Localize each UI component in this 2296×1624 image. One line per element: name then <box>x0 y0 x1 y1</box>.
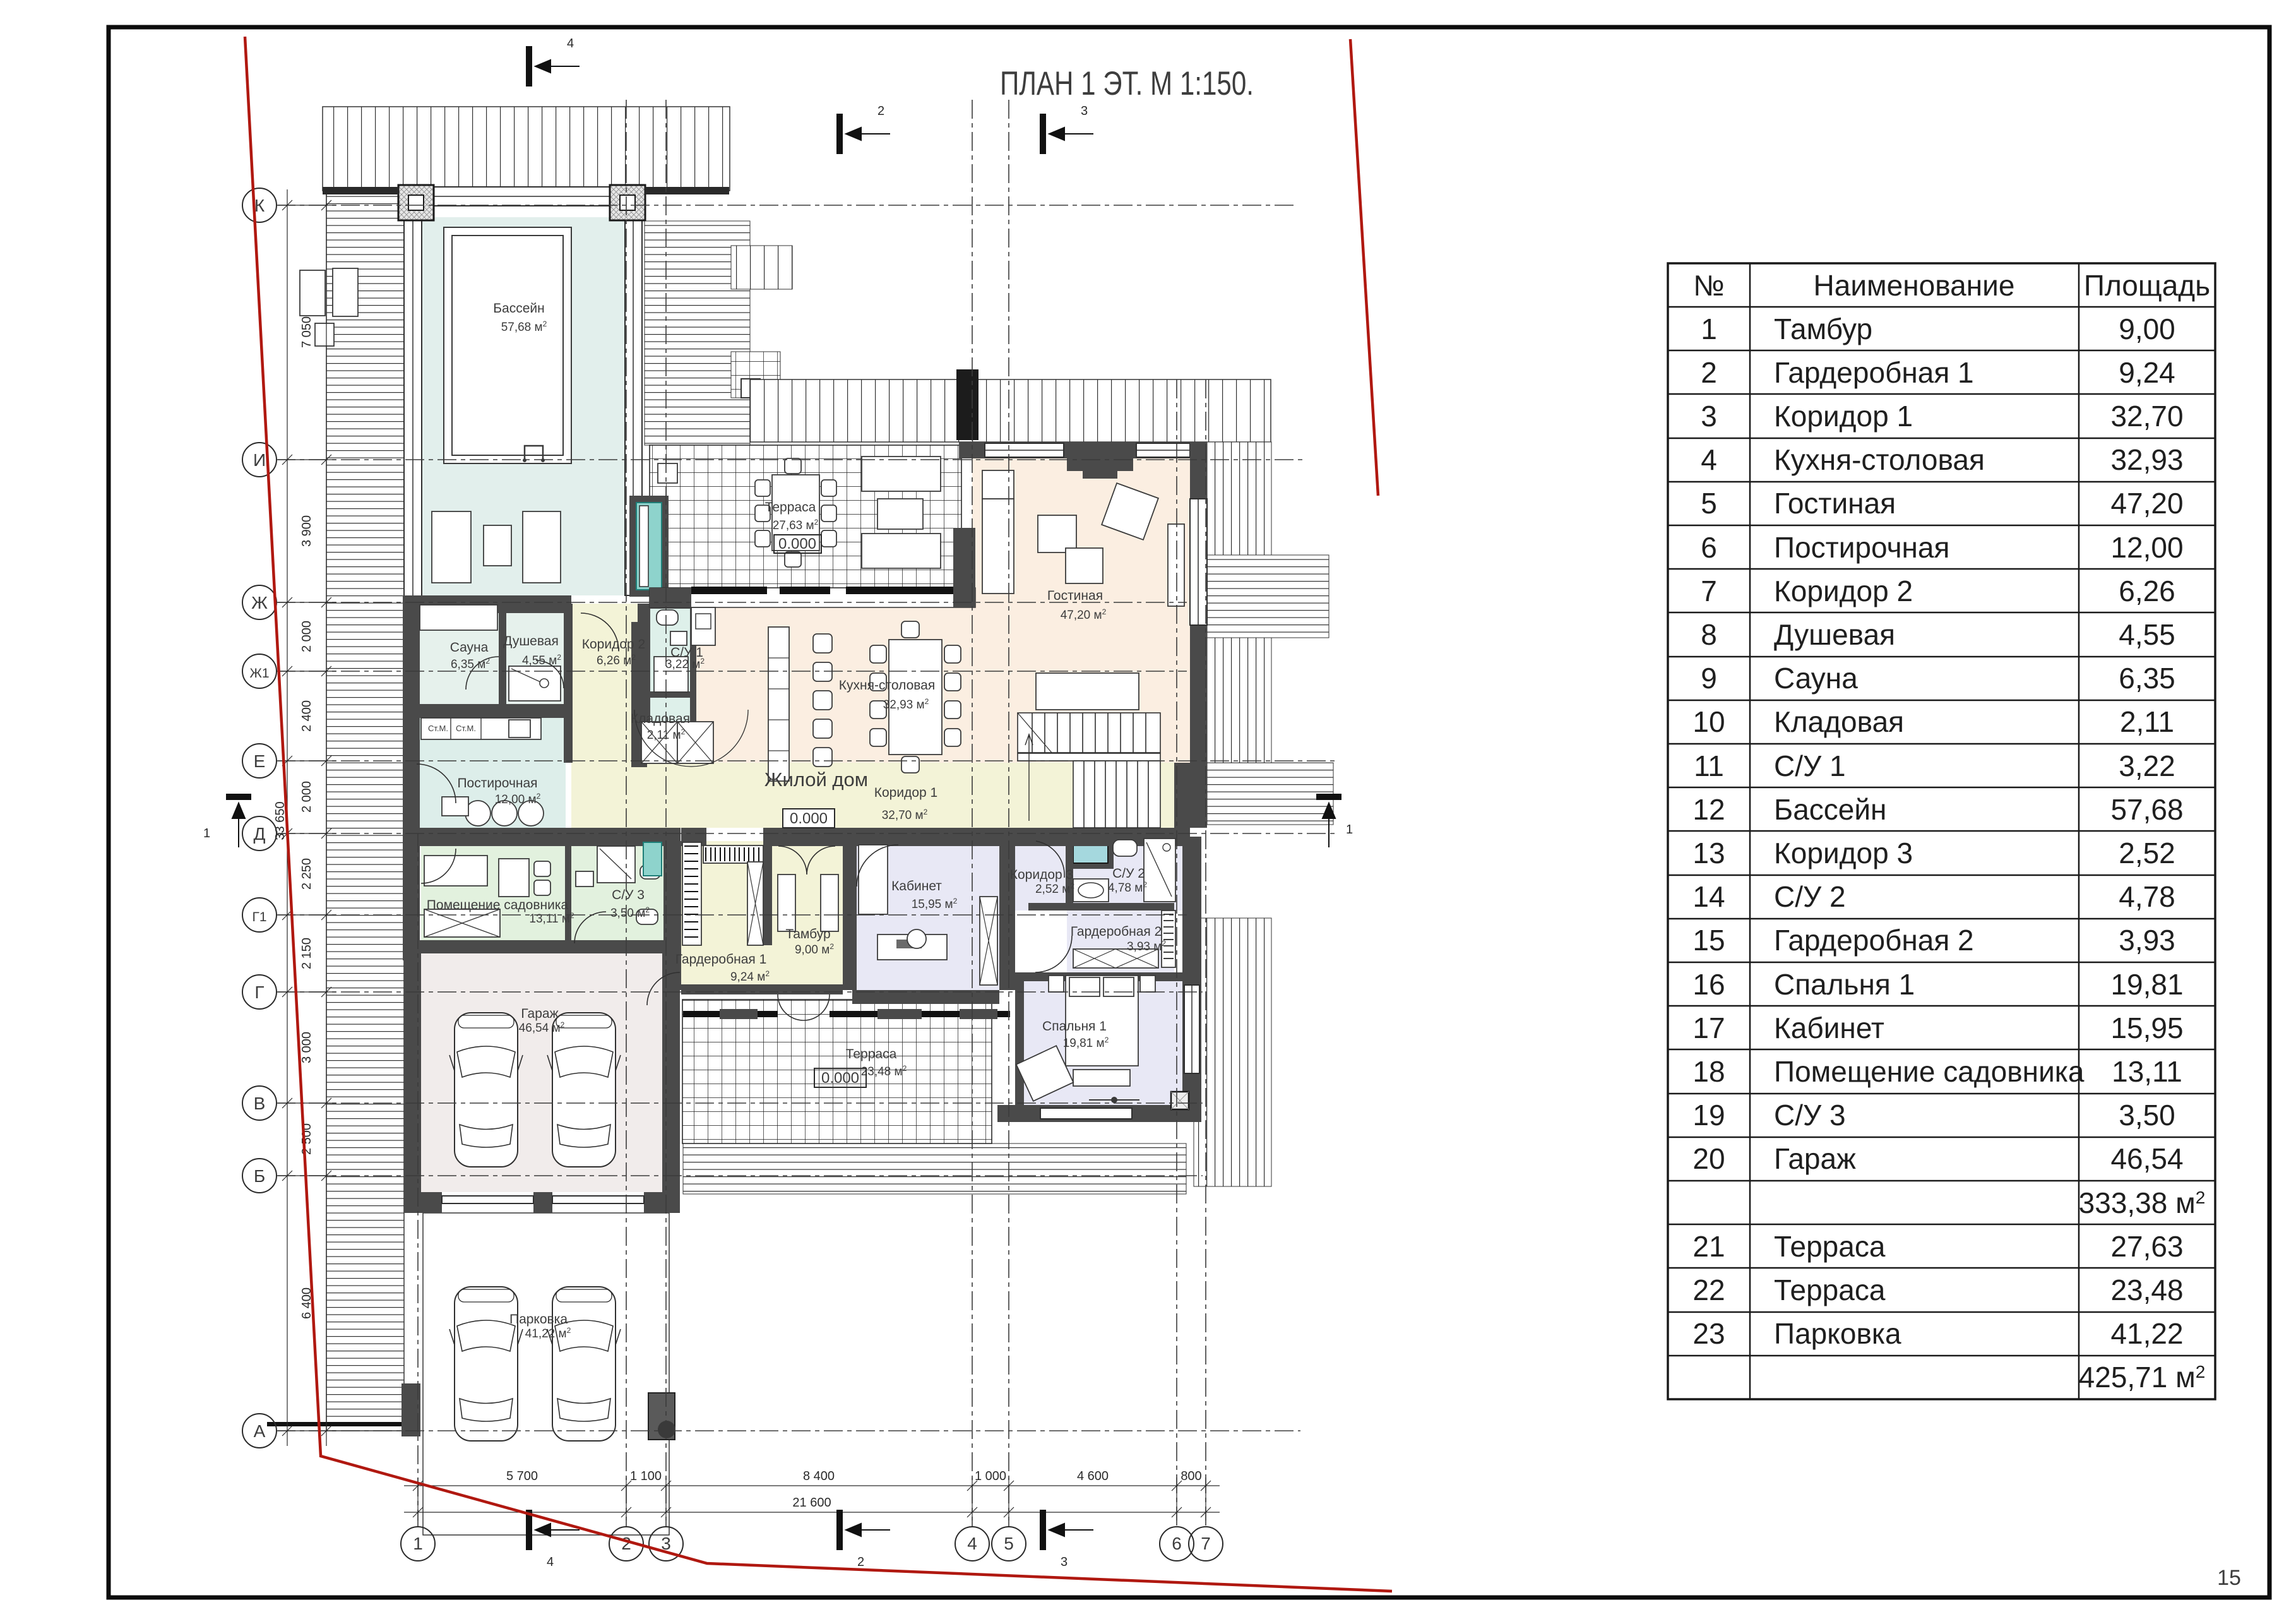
svg-text:19,81 м2: 19,81 м2 <box>1063 1036 1109 1050</box>
svg-text:15: 15 <box>2217 1566 2241 1590</box>
svg-text:Наименование: Наименование <box>1814 269 2015 302</box>
svg-text:Коридор 3: Коридор 3 <box>1774 837 1913 869</box>
svg-text:5: 5 <box>1004 1534 1014 1553</box>
svg-text:Ж1: Ж1 <box>249 666 269 681</box>
svg-text:С/У 3: С/У 3 <box>1774 1099 1846 1131</box>
svg-text:Коридор 2: Коридор 2 <box>1774 575 1913 607</box>
svg-text:Коридор 1: Коридор 1 <box>874 785 937 800</box>
svg-text:12: 12 <box>1692 793 1725 826</box>
svg-text:6,26: 6,26 <box>2119 575 2175 607</box>
svg-text:9,24 м2: 9,24 м2 <box>730 969 770 984</box>
svg-text:1: 1 <box>1701 313 1717 345</box>
svg-text:46,54: 46,54 <box>2110 1142 2183 1175</box>
svg-text:13,11 м2: 13,11 м2 <box>529 911 574 926</box>
svg-text:Д: Д <box>254 824 266 844</box>
svg-text:С/У 3: С/У 3 <box>612 888 645 902</box>
svg-text:15,95 м2: 15,95 м2 <box>912 897 958 911</box>
svg-text:9,00: 9,00 <box>2119 313 2175 345</box>
svg-text:Помещение садовника: Помещение садовника <box>427 898 569 912</box>
svg-text:21 600: 21 600 <box>792 1496 831 1510</box>
svg-text:Е: Е <box>254 751 266 771</box>
svg-text:18: 18 <box>1692 1055 1725 1088</box>
svg-text:Тамбур: Тамбур <box>785 927 830 941</box>
svg-text:Помещение садовника: Помещение садовника <box>1774 1055 2085 1088</box>
svg-text:Терраса: Терраса <box>1774 1274 1886 1306</box>
svg-text:С/У 1: С/У 1 <box>1774 749 1846 782</box>
svg-text:3,50: 3,50 <box>2119 1099 2175 1131</box>
svg-text:6,35 м2: 6,35 м2 <box>451 657 490 671</box>
svg-text:Ст.М.: Ст.М. <box>456 724 476 733</box>
svg-text:15,95: 15,95 <box>2110 1012 2183 1044</box>
svg-text:2 400: 2 400 <box>300 700 314 732</box>
svg-text:Спальня 1: Спальня 1 <box>1042 1019 1107 1034</box>
svg-text:800: 800 <box>1181 1469 1201 1483</box>
svg-text:2 150: 2 150 <box>300 938 314 969</box>
svg-text:4: 4 <box>967 1534 977 1553</box>
svg-text:425,71 м2: 425,71 м2 <box>2079 1361 2206 1394</box>
svg-text:Кухня-столовая: Кухня-столовая <box>839 678 935 693</box>
svg-text:5 700: 5 700 <box>506 1469 538 1483</box>
svg-text:2: 2 <box>857 1555 864 1569</box>
svg-text:4: 4 <box>547 1555 554 1569</box>
svg-text:2: 2 <box>1701 356 1717 389</box>
svg-text:4 600: 4 600 <box>1077 1469 1109 1483</box>
svg-text:32,93 м2: 32,93 м2 <box>883 697 929 712</box>
svg-text:Терраса: Терраса <box>765 500 816 515</box>
svg-text:Коридор 1: Коридор 1 <box>1774 400 1913 433</box>
svg-text:10: 10 <box>1692 705 1725 738</box>
svg-text:Гардеробная 2: Гардеробная 2 <box>1071 924 1162 939</box>
svg-text:Постирочная: Постирочная <box>457 776 537 791</box>
svg-text:7 050: 7 050 <box>300 316 314 348</box>
svg-text:Кладовая: Кладовая <box>1774 705 1904 738</box>
svg-text:Коридор 3: Коридор 3 <box>1010 868 1073 882</box>
svg-text:57,68 м2: 57,68 м2 <box>501 319 547 334</box>
svg-text:3,93 м2: 3,93 м2 <box>1127 939 1166 953</box>
svg-text:Спальня 1: Спальня 1 <box>1774 968 1915 1001</box>
svg-text:Кладовая: Кладовая <box>631 712 690 726</box>
svg-text:Ж: Ж <box>251 593 268 612</box>
svg-text:14: 14 <box>1692 880 1725 913</box>
svg-text:9,24: 9,24 <box>2119 356 2175 389</box>
svg-text:Жилой дом: Жилой дом <box>764 768 868 791</box>
svg-text:3 900: 3 900 <box>300 515 314 547</box>
svg-text:3,22 м2: 3,22 м2 <box>665 657 705 671</box>
svg-text:1: 1 <box>203 827 210 840</box>
svg-text:2 250: 2 250 <box>300 858 314 890</box>
svg-text:Душевая: Душевая <box>1774 618 1895 651</box>
svg-text:15: 15 <box>1692 924 1725 957</box>
svg-text:2,11: 2,11 <box>2120 705 2174 738</box>
svg-text:Коридор 2: Коридор 2 <box>582 637 645 652</box>
svg-text:19,81: 19,81 <box>2110 968 2183 1001</box>
svg-text:В: В <box>254 1094 266 1113</box>
svg-text:6: 6 <box>1701 531 1717 564</box>
svg-text:1: 1 <box>413 1534 423 1553</box>
svg-text:22: 22 <box>1692 1274 1725 1306</box>
svg-text:С/У 2: С/У 2 <box>1112 866 1145 881</box>
svg-text:17: 17 <box>1692 1012 1725 1044</box>
svg-text:11: 11 <box>1694 749 1724 782</box>
svg-text:Душевая: Душевая <box>503 634 559 648</box>
svg-text:2: 2 <box>877 104 884 118</box>
svg-text:Гостиная: Гостиная <box>1774 487 1896 520</box>
svg-text:Гардеробная 2: Гардеробная 2 <box>1774 924 1974 957</box>
svg-text:Ст.М.: Ст.М. <box>428 724 448 733</box>
svg-text:2,52: 2,52 <box>2119 837 2175 869</box>
svg-text:333,38 м2: 333,38 м2 <box>2079 1186 2206 1219</box>
svg-text:9: 9 <box>1701 662 1717 695</box>
svg-text:Кухня-столовая: Кухня-столовая <box>1774 443 1985 476</box>
svg-text:2,52 м2: 2,52 м2 <box>1035 881 1074 896</box>
svg-text:21: 21 <box>1692 1230 1725 1263</box>
svg-text:23,48 м2: 23,48 м2 <box>861 1064 907 1078</box>
svg-text:И: И <box>253 450 266 470</box>
svg-text:41,22 м2: 41,22 м2 <box>525 1326 571 1340</box>
svg-text:2: 2 <box>621 1534 631 1553</box>
svg-text:32,70: 32,70 <box>2110 400 2183 433</box>
svg-text:1 000: 1 000 <box>975 1469 1006 1483</box>
svg-text:3,50 м2: 3,50 м2 <box>610 905 650 920</box>
svg-text:Гараж: Гараж <box>1774 1142 1856 1175</box>
svg-text:27,63 м2: 27,63 м2 <box>773 518 819 532</box>
svg-text:32,93: 32,93 <box>2110 443 2183 476</box>
svg-text:Площадь: Площадь <box>2084 269 2210 302</box>
svg-text:С/У 2: С/У 2 <box>1774 880 1846 913</box>
svg-text:9,00 м2: 9,00 м2 <box>795 942 834 957</box>
svg-text:Терраса: Терраса <box>846 1047 897 1061</box>
svg-text:Кабинет: Кабинет <box>1774 1012 1884 1044</box>
svg-text:8 400: 8 400 <box>803 1469 835 1483</box>
svg-text:6,35: 6,35 <box>2119 662 2175 695</box>
svg-text:Парковка: Парковка <box>509 1312 568 1327</box>
svg-text:7: 7 <box>1201 1534 1211 1553</box>
svg-text:19: 19 <box>1692 1099 1725 1131</box>
svg-text:3: 3 <box>1061 1555 1068 1569</box>
svg-text:Гардеробная 1: Гардеробная 1 <box>675 952 767 967</box>
svg-text:4,78 м2: 4,78 м2 <box>1108 880 1147 895</box>
svg-text:Сауна: Сауна <box>450 640 489 655</box>
svg-text:А: А <box>254 1421 266 1441</box>
svg-text:2 000: 2 000 <box>300 781 314 813</box>
svg-text:5: 5 <box>1701 487 1717 520</box>
svg-text:12,00 м2: 12,00 м2 <box>495 792 541 806</box>
svg-text:57,68: 57,68 <box>2110 793 2183 826</box>
svg-text:3,22: 3,22 <box>2119 749 2175 782</box>
svg-text:23,48: 23,48 <box>2110 1274 2183 1306</box>
svg-text:32,70 м2: 32,70 м2 <box>882 808 928 822</box>
svg-text:0.000: 0.000 <box>790 810 828 827</box>
svg-text:13: 13 <box>1692 837 1725 869</box>
svg-text:Гостиная: Гостиная <box>1047 588 1103 603</box>
svg-text:4,55 м2: 4,55 м2 <box>522 653 561 667</box>
svg-text:0.000: 0.000 <box>778 535 816 552</box>
svg-text:1: 1 <box>1346 823 1353 837</box>
svg-text:Бассейн: Бассейн <box>1774 793 1886 826</box>
svg-text:3: 3 <box>1081 104 1088 118</box>
svg-text:27,63: 27,63 <box>2110 1230 2183 1263</box>
svg-text:Гараж: Гараж <box>521 1006 558 1021</box>
svg-text:2,11 м2: 2,11 м2 <box>647 727 686 742</box>
svg-text:3,93: 3,93 <box>2119 924 2175 957</box>
svg-text:23: 23 <box>1692 1317 1725 1350</box>
svg-text:3 000: 3 000 <box>300 1032 314 1063</box>
svg-text:13,11: 13,11 <box>2112 1055 2182 1088</box>
svg-text:Г1: Г1 <box>252 910 266 924</box>
svg-text:Б: Б <box>254 1166 265 1186</box>
svg-text:Гардеробная 1: Гардеробная 1 <box>1774 356 1974 389</box>
svg-text:8: 8 <box>1701 618 1717 651</box>
svg-text:4: 4 <box>1701 443 1717 476</box>
svg-text:46,54 м2: 46,54 м2 <box>519 1020 565 1035</box>
svg-text:4: 4 <box>567 37 574 51</box>
svg-text:№: № <box>1693 269 1724 302</box>
svg-text:Терраса: Терраса <box>1774 1230 1886 1263</box>
svg-text:47,20: 47,20 <box>2110 487 2183 520</box>
svg-text:20: 20 <box>1692 1142 1725 1175</box>
svg-text:2 000: 2 000 <box>300 621 314 652</box>
svg-text:4,78: 4,78 <box>2119 880 2175 913</box>
svg-text:Г: Г <box>254 982 264 1002</box>
svg-text:3: 3 <box>1701 400 1717 433</box>
svg-text:41,22: 41,22 <box>2110 1317 2183 1350</box>
svg-text:47,20 м2: 47,20 м2 <box>1061 607 1107 622</box>
svg-text:1 100: 1 100 <box>630 1469 662 1483</box>
svg-text:6,26 м2: 6,26 м2 <box>597 653 636 667</box>
svg-text:Тамбур: Тамбур <box>1774 313 1872 345</box>
svg-text:К: К <box>254 196 265 215</box>
svg-text:12,00: 12,00 <box>2110 531 2183 564</box>
svg-text:ПЛАН 1 ЭТ. М 1:150.: ПЛАН 1 ЭТ. М 1:150. <box>1000 65 1254 102</box>
svg-text:6: 6 <box>1172 1534 1182 1553</box>
svg-text:0.000: 0.000 <box>821 1070 859 1087</box>
svg-text:Постирочная: Постирочная <box>1774 531 1949 564</box>
svg-text:Сауна: Сауна <box>1774 662 1858 695</box>
svg-text:Кабинет: Кабинет <box>891 879 942 893</box>
svg-text:Парковка: Парковка <box>1774 1317 1901 1350</box>
svg-text:7: 7 <box>1701 575 1717 607</box>
svg-text:16: 16 <box>1692 968 1725 1001</box>
svg-text:Бассейн: Бассейн <box>493 301 544 316</box>
svg-text:4,55: 4,55 <box>2119 618 2175 651</box>
